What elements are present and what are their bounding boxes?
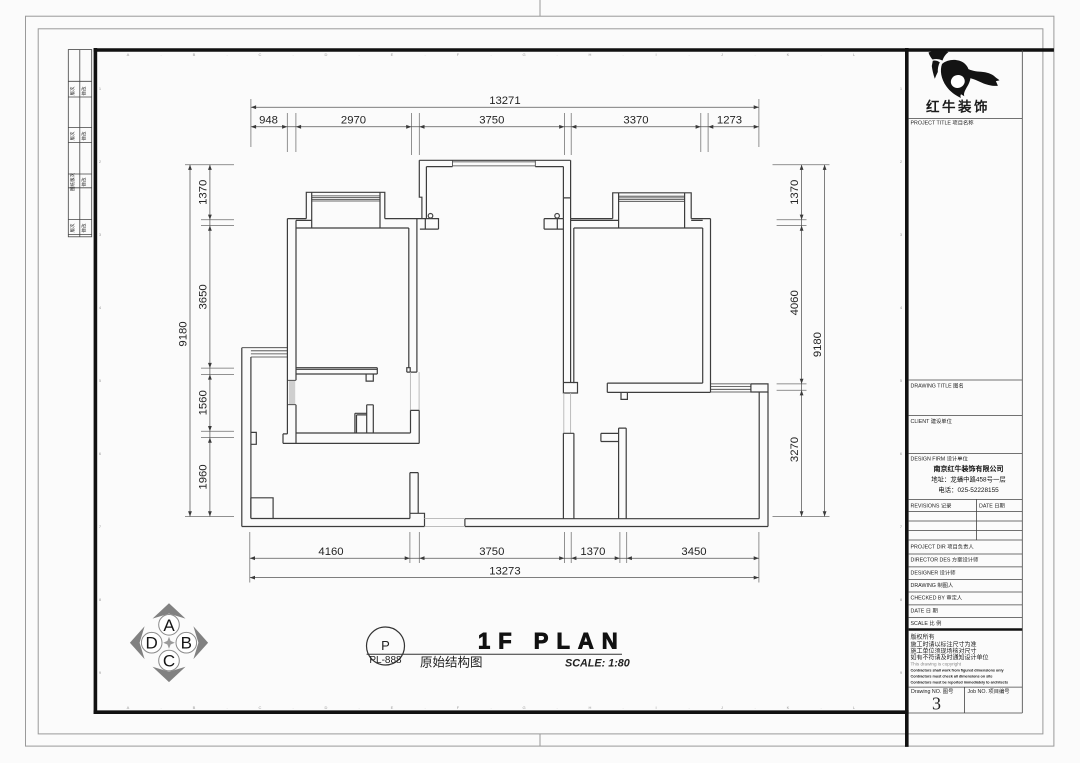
svg-text:1560: 1560: [197, 390, 209, 415]
svg-text:.: .: [490, 705, 491, 710]
svg-text:13271: 13271: [489, 95, 520, 107]
svg-text:DESIGNER 设计师: DESIGNER 设计师: [911, 568, 957, 576]
svg-text:D: D: [325, 705, 328, 710]
svg-text:E: E: [391, 52, 394, 57]
svg-text:CLIENT 建设单位: CLIENT 建设单位: [911, 417, 953, 425]
svg-text:1273: 1273: [717, 114, 742, 126]
svg-text:Contractors shall work from fi: Contractors shall work from figured dime…: [911, 669, 1005, 673]
svg-text:1370: 1370: [789, 180, 801, 205]
svg-text:P: P: [381, 638, 390, 653]
svg-text:A: A: [127, 705, 130, 710]
svg-text:948: 948: [259, 114, 278, 126]
svg-text:H: H: [589, 705, 592, 710]
svg-text:Contractors must be reported i: Contractors must be reported immediately…: [911, 681, 1009, 685]
svg-text:SCALE: 1:80: SCALE: 1:80: [565, 658, 630, 670]
svg-text:C: C: [163, 652, 175, 671]
svg-text:.: .: [754, 52, 755, 57]
svg-text:Contractors must check all dim: Contractors must check all dimensions on…: [911, 675, 993, 679]
svg-text:.: .: [226, 705, 227, 710]
svg-text:J: J: [721, 52, 723, 57]
svg-text:H: H: [589, 52, 592, 57]
svg-text:.: .: [820, 705, 821, 710]
svg-text:3750: 3750: [479, 546, 504, 558]
svg-text:.: .: [820, 52, 821, 57]
svg-text:.: .: [490, 52, 491, 57]
svg-text:C: C: [259, 52, 262, 57]
svg-text:DATE 日 期: DATE 日 期: [911, 607, 938, 614]
svg-text:3370: 3370: [623, 114, 648, 126]
svg-text:.: .: [424, 705, 425, 710]
svg-text:.: .: [160, 705, 161, 710]
svg-text:This drawing is copyright: This drawing is copyright: [911, 662, 962, 667]
svg-text:.: .: [688, 52, 689, 57]
svg-text:G: G: [522, 52, 525, 57]
svg-text:3270: 3270: [789, 437, 801, 462]
svg-text:C: C: [259, 705, 262, 710]
svg-text:原始结构图: 原始结构图: [420, 655, 483, 670]
svg-text:.: .: [292, 52, 293, 57]
svg-text:REVISIONS 记录: REVISIONS 记录: [911, 502, 953, 510]
svg-text:版次: 版次: [69, 131, 76, 140]
svg-text:南京红牛装饰有限公司: 南京红牛装饰有限公司: [934, 464, 1004, 473]
svg-text:1370: 1370: [580, 546, 605, 558]
svg-text:I: I: [655, 52, 656, 57]
svg-text:A: A: [163, 616, 175, 635]
svg-text:如有不符请及时通知设计单位: 如有不符请及时通知设计单位: [911, 654, 989, 662]
svg-text:.: .: [754, 705, 755, 710]
svg-text:施工时请以标注尺寸为准: 施工时请以标注尺寸为准: [911, 641, 977, 649]
svg-text:.: .: [358, 705, 359, 710]
svg-text:DATE 日期: DATE 日期: [979, 503, 1005, 510]
svg-text:G: G: [522, 705, 525, 710]
svg-text:电话：025-52228155: 电话：025-52228155: [938, 485, 999, 494]
svg-text:2970: 2970: [341, 114, 366, 126]
svg-text:PL-888: PL-888: [369, 655, 402, 666]
svg-text:D: D: [146, 634, 158, 653]
svg-text:SCALE 比 例: SCALE 比 例: [911, 619, 942, 627]
svg-text:修改: 修改: [81, 86, 88, 95]
svg-text:E: E: [391, 705, 394, 710]
svg-text:修改: 修改: [81, 131, 88, 140]
svg-text:4060: 4060: [789, 290, 801, 315]
svg-text:B: B: [193, 52, 196, 57]
svg-text:3650: 3650: [197, 284, 209, 309]
svg-text:.: .: [556, 52, 557, 57]
svg-text:1F PLAN: 1F PLAN: [478, 629, 626, 654]
svg-text:Job NO. 项目编号: Job NO. 项目编号: [968, 687, 1010, 695]
svg-text:修改: 修改: [81, 177, 88, 186]
svg-text:.: .: [622, 705, 623, 710]
svg-text:图纸版次: 图纸版次: [69, 173, 76, 191]
svg-text:.: .: [226, 52, 227, 57]
svg-text:B: B: [193, 705, 196, 710]
svg-text:地址：龙蟠中路458号一层: 地址：龙蟠中路458号一层: [931, 475, 1006, 484]
svg-text:.: .: [556, 705, 557, 710]
svg-text:9180: 9180: [812, 332, 824, 357]
svg-text:A: A: [127, 52, 130, 57]
svg-text:.: .: [688, 705, 689, 710]
svg-text:1960: 1960: [197, 464, 209, 489]
svg-text:D: D: [325, 52, 328, 57]
svg-text:B: B: [181, 634, 192, 653]
svg-text:3750: 3750: [479, 114, 504, 126]
svg-text:红牛装饰: 红牛装饰: [926, 99, 990, 115]
svg-text:版次: 版次: [69, 86, 76, 95]
svg-text:3450: 3450: [681, 546, 706, 558]
svg-text:.: .: [358, 52, 359, 57]
svg-text:4160: 4160: [318, 546, 343, 558]
svg-text:DRAWING 制图人: DRAWING 制图人: [911, 581, 954, 589]
svg-text:版次: 版次: [69, 223, 76, 232]
svg-text:修改: 修改: [81, 223, 88, 232]
svg-text:13273: 13273: [489, 565, 520, 577]
svg-text:DRAWING TITLE 图名: DRAWING TITLE 图名: [911, 382, 964, 390]
svg-text:I: I: [655, 705, 656, 710]
svg-text:CHECKED BY 审定人: CHECKED BY 审定人: [911, 594, 963, 602]
svg-text:K: K: [787, 52, 790, 57]
svg-text:.: .: [160, 52, 161, 57]
svg-text:.: .: [424, 52, 425, 57]
svg-text:1370: 1370: [197, 180, 209, 205]
svg-text:9180: 9180: [177, 321, 189, 346]
svg-text:施工单位须现场核对尺寸: 施工单位须现场核对尺寸: [911, 647, 977, 655]
svg-text:PROJECT TITLE 项目名称: PROJECT TITLE 项目名称: [911, 118, 975, 126]
svg-text:PROJECT DIR 项目负责人: PROJECT DIR 项目负责人: [911, 543, 975, 551]
svg-text:.: .: [292, 705, 293, 710]
svg-text:J: J: [721, 705, 723, 710]
svg-text:DESIGN FIRM 设计单位: DESIGN FIRM 设计单位: [911, 455, 969, 463]
svg-text:DIRECTOR DES 方案设计师: DIRECTOR DES 方案设计师: [911, 556, 980, 564]
svg-text:.: .: [622, 52, 623, 57]
svg-text:K: K: [787, 705, 790, 710]
svg-text:3: 3: [932, 694, 941, 714]
svg-text:版权所有: 版权所有: [911, 633, 935, 641]
